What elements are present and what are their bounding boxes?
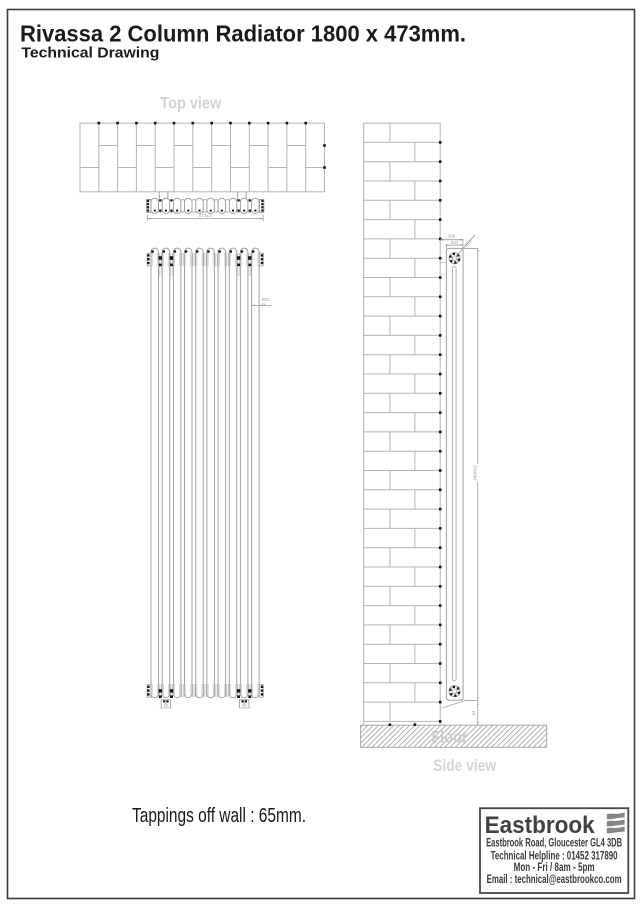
svg-text:Eastbrook: Eastbrook bbox=[485, 812, 595, 839]
svg-text:Floor: Floor bbox=[432, 728, 468, 746]
svg-text:Email : technical@eastbrookco.: Email : technical@eastbrookco.com bbox=[487, 873, 622, 886]
svg-text:Tappings off wall : 65mm.: Tappings off wall : 65mm. bbox=[132, 804, 306, 827]
svg-text:473±2: 473±2 bbox=[199, 213, 213, 219]
svg-text:(62): (62) bbox=[451, 240, 459, 245]
svg-text:1800±2: 1800±2 bbox=[472, 465, 478, 481]
svg-text:Technical Drawing: Technical Drawing bbox=[21, 45, 159, 62]
svg-text:±2: ±2 bbox=[262, 302, 266, 306]
svg-text:63: 63 bbox=[471, 710, 476, 715]
svg-text:100: 100 bbox=[448, 233, 456, 238]
svg-text:Top view: Top view bbox=[160, 94, 221, 112]
svg-text:Rivassa 2 Column Radiator 1800: Rivassa 2 Column Radiator 1800 x 473mm. bbox=[20, 21, 466, 47]
svg-text:Eastbrook Road, Gloucester GL4: Eastbrook Road, Gloucester GL4 3DB bbox=[486, 837, 622, 850]
svg-text:Side view: Side view bbox=[433, 757, 496, 775]
